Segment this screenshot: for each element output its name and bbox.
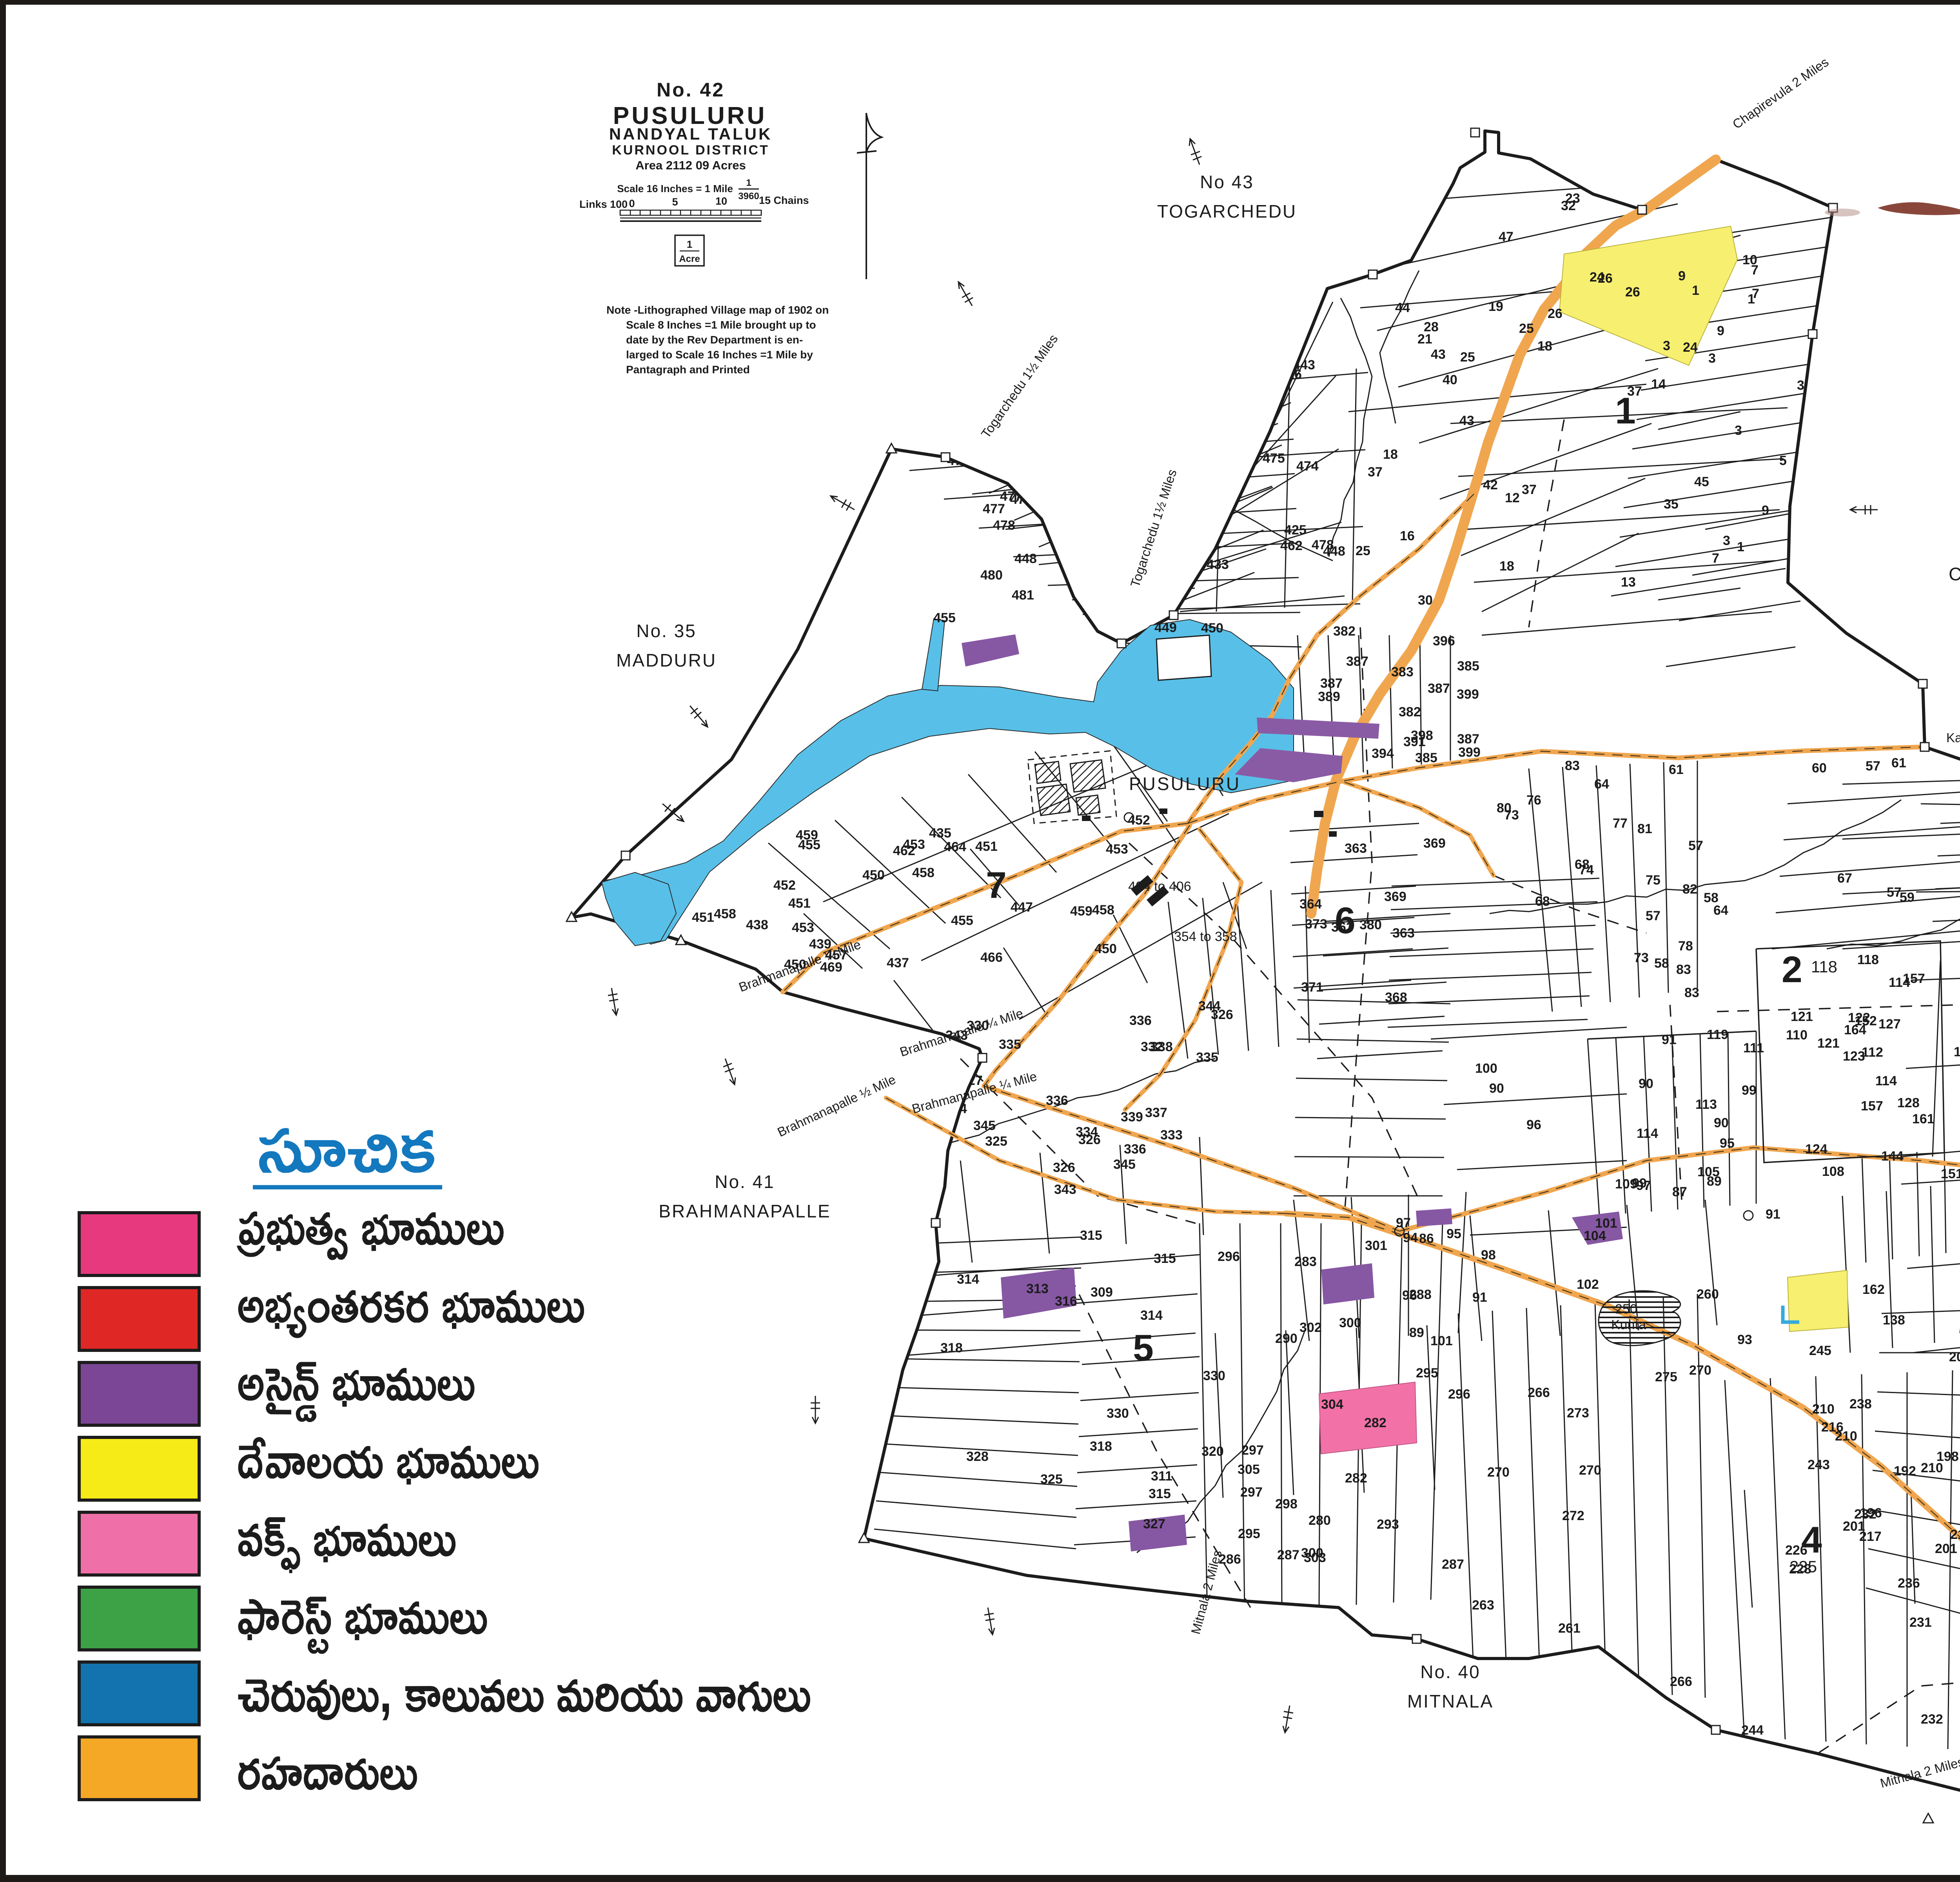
svg-text:315: 315 bbox=[1154, 1251, 1176, 1266]
svg-text:14: 14 bbox=[1651, 377, 1666, 392]
svg-text:438: 438 bbox=[746, 917, 768, 932]
svg-text:448: 448 bbox=[1323, 544, 1345, 559]
svg-text:389: 389 bbox=[1318, 689, 1340, 704]
svg-text:270: 270 bbox=[1689, 1363, 1711, 1378]
svg-text:455: 455 bbox=[933, 610, 956, 625]
svg-text:295: 295 bbox=[1238, 1526, 1260, 1541]
svg-text:95: 95 bbox=[1446, 1226, 1461, 1241]
svg-text:105: 105 bbox=[1697, 1164, 1720, 1179]
svg-text:450: 450 bbox=[862, 868, 885, 883]
svg-text:333: 333 bbox=[1160, 1128, 1183, 1143]
svg-text:77: 77 bbox=[1613, 816, 1628, 831]
svg-text:453: 453 bbox=[1106, 842, 1128, 857]
svg-text:192: 192 bbox=[1894, 1464, 1916, 1479]
svg-text:1: 1 bbox=[1737, 540, 1744, 554]
svg-text:290: 290 bbox=[1275, 1331, 1298, 1346]
svg-text:387: 387 bbox=[1346, 654, 1368, 669]
svg-text:24: 24 bbox=[1590, 270, 1604, 285]
svg-text:9: 9 bbox=[1717, 323, 1724, 338]
svg-text:157: 157 bbox=[1861, 1099, 1883, 1114]
svg-text:474: 474 bbox=[1296, 459, 1319, 474]
svg-text:7: 7 bbox=[986, 865, 1007, 906]
svg-text:114: 114 bbox=[1875, 1074, 1897, 1088]
svg-text:304: 304 bbox=[1321, 1397, 1343, 1412]
svg-text:383: 383 bbox=[1391, 665, 1414, 679]
svg-text:425: 425 bbox=[1284, 523, 1307, 538]
svg-text:238: 238 bbox=[1849, 1397, 1872, 1411]
svg-text:102: 102 bbox=[1577, 1277, 1599, 1292]
svg-text:272: 272 bbox=[1562, 1508, 1584, 1523]
svg-text:91: 91 bbox=[1662, 1032, 1677, 1047]
svg-text:3960: 3960 bbox=[738, 191, 759, 202]
svg-text:464: 464 bbox=[944, 839, 966, 854]
svg-text:86: 86 bbox=[1419, 1231, 1434, 1246]
svg-text:318: 318 bbox=[940, 1341, 963, 1355]
svg-text:118: 118 bbox=[1857, 952, 1879, 967]
svg-text:124: 124 bbox=[1805, 1142, 1828, 1157]
svg-text:382: 382 bbox=[1399, 705, 1421, 719]
svg-text:73: 73 bbox=[1634, 950, 1649, 965]
svg-text:287: 287 bbox=[1277, 1548, 1299, 1562]
svg-text:Acre: Acre bbox=[679, 254, 700, 264]
svg-text:455: 455 bbox=[798, 837, 820, 852]
svg-text:245: 245 bbox=[1809, 1343, 1831, 1358]
svg-text:459: 459 bbox=[1070, 904, 1093, 919]
svg-text:283: 283 bbox=[1294, 1254, 1317, 1269]
svg-text:452: 452 bbox=[773, 878, 796, 893]
svg-text:9: 9 bbox=[1678, 269, 1686, 283]
svg-text:447: 447 bbox=[1011, 900, 1033, 915]
svg-text:57: 57 bbox=[1688, 838, 1703, 853]
svg-text:303: 303 bbox=[1304, 1550, 1326, 1565]
svg-text:90: 90 bbox=[1639, 1076, 1653, 1091]
svg-text:35: 35 bbox=[1664, 497, 1679, 512]
svg-text:larged to Scale 16 Inches =1: larged to Scale 16 Inches =1 Mile by bbox=[626, 349, 813, 361]
svg-text:364: 364 bbox=[1299, 897, 1322, 912]
svg-text:371: 371 bbox=[1301, 980, 1323, 995]
svg-text:MITNALA: MITNALA bbox=[1407, 1691, 1494, 1711]
svg-text:387: 387 bbox=[1457, 732, 1479, 747]
svg-text:127: 127 bbox=[1878, 1017, 1901, 1032]
svg-text:302: 302 bbox=[1299, 1320, 1322, 1335]
svg-text:275: 275 bbox=[1655, 1370, 1677, 1384]
svg-text:119: 119 bbox=[1707, 1027, 1728, 1042]
svg-text:373: 373 bbox=[1305, 917, 1327, 932]
svg-text:PUSULURU: PUSULURU bbox=[1129, 774, 1241, 794]
svg-text:Kunta: Kunta bbox=[1611, 1317, 1646, 1332]
svg-text:123: 123 bbox=[1843, 1049, 1865, 1064]
svg-text:387: 387 bbox=[1428, 681, 1450, 696]
svg-text:Note -Lithographed Village ma: Note -Lithographed Village map of 1902 o… bbox=[606, 304, 829, 316]
svg-text:1: 1 bbox=[746, 178, 751, 188]
svg-text:210: 210 bbox=[1921, 1461, 1943, 1475]
svg-text:288: 288 bbox=[1409, 1287, 1432, 1302]
svg-text:76: 76 bbox=[1526, 793, 1541, 808]
svg-text:260: 260 bbox=[1697, 1287, 1719, 1302]
svg-text:91: 91 bbox=[1766, 1207, 1780, 1222]
svg-text:210: 210 bbox=[1812, 1402, 1835, 1417]
svg-text:10: 10 bbox=[1742, 253, 1757, 267]
svg-text:266: 266 bbox=[1670, 1674, 1692, 1689]
svg-text:330: 330 bbox=[1203, 1368, 1225, 1383]
svg-text:118: 118 bbox=[1811, 957, 1837, 976]
svg-text:325: 325 bbox=[985, 1134, 1007, 1149]
svg-text:325: 325 bbox=[1040, 1472, 1063, 1487]
svg-text:5: 5 bbox=[1133, 1327, 1154, 1369]
svg-text:363: 363 bbox=[1345, 841, 1367, 856]
svg-text:433: 433 bbox=[1207, 557, 1229, 572]
svg-text:161: 161 bbox=[1912, 1112, 1935, 1126]
svg-text:64: 64 bbox=[1713, 903, 1728, 918]
svg-text:19: 19 bbox=[1488, 299, 1503, 314]
svg-text:BRAHMANAPALLE: BRAHMANAPALLE bbox=[659, 1201, 831, 1221]
svg-text:231: 231 bbox=[1909, 1615, 1932, 1630]
svg-text:450: 450 bbox=[1094, 941, 1117, 956]
svg-text:9: 9 bbox=[1762, 503, 1769, 518]
svg-text:No. 41: No. 41 bbox=[715, 1172, 775, 1192]
svg-text:15 Chains: 15 Chains bbox=[759, 194, 809, 206]
svg-text:73: 73 bbox=[1504, 808, 1519, 823]
svg-text:210: 210 bbox=[1950, 1527, 1960, 1542]
svg-text:280: 280 bbox=[1308, 1513, 1331, 1528]
svg-text:13: 13 bbox=[1621, 575, 1636, 590]
svg-text:60: 60 bbox=[1812, 761, 1827, 776]
svg-text:NANDYAL TALUK: NANDYAL TALUK bbox=[609, 125, 773, 143]
svg-text:266: 266 bbox=[1528, 1385, 1550, 1400]
svg-text:270: 270 bbox=[1579, 1463, 1601, 1478]
svg-text:3: 3 bbox=[1735, 423, 1742, 438]
svg-text:91: 91 bbox=[1472, 1290, 1487, 1305]
svg-text:435: 435 bbox=[929, 826, 951, 841]
svg-text:316: 316 bbox=[1055, 1294, 1077, 1309]
svg-text:25: 25 bbox=[1519, 321, 1534, 336]
svg-text:451: 451 bbox=[692, 910, 714, 925]
svg-text:270: 270 bbox=[1487, 1465, 1510, 1480]
svg-text:24: 24 bbox=[1683, 340, 1698, 355]
svg-text:45: 45 bbox=[1694, 474, 1709, 489]
svg-text:261: 261 bbox=[1558, 1621, 1581, 1636]
svg-text:5: 5 bbox=[1779, 453, 1787, 468]
svg-text:232: 232 bbox=[1921, 1712, 1943, 1727]
svg-text:250: 250 bbox=[1615, 1302, 1637, 1317]
svg-text:201: 201 bbox=[1843, 1519, 1865, 1534]
svg-text:363: 363 bbox=[1392, 926, 1415, 941]
svg-text:3: 3 bbox=[1708, 351, 1716, 366]
svg-text:336: 336 bbox=[1124, 1142, 1146, 1157]
svg-text:151: 151 bbox=[1941, 1166, 1960, 1181]
svg-text:Scale 8 Inches =1 Mile brought: Scale 8 Inches =1 Mile brought up to bbox=[626, 319, 816, 331]
svg-text:57: 57 bbox=[1866, 759, 1880, 774]
svg-text:75: 75 bbox=[1646, 873, 1661, 888]
svg-text:64: 64 bbox=[1594, 777, 1609, 792]
svg-text:96: 96 bbox=[1526, 1117, 1541, 1132]
svg-text:12: 12 bbox=[1505, 490, 1520, 505]
svg-text:122: 122 bbox=[1848, 1010, 1870, 1025]
svg-text:99: 99 bbox=[1742, 1083, 1757, 1098]
svg-text:451: 451 bbox=[975, 839, 998, 854]
svg-text:58: 58 bbox=[1654, 956, 1669, 971]
svg-text:368: 368 bbox=[1385, 990, 1407, 1005]
svg-text:68: 68 bbox=[1535, 894, 1550, 909]
svg-text:TOGARCHEDU: TOGARCHEDU bbox=[1157, 201, 1297, 222]
svg-text:345: 345 bbox=[1113, 1157, 1136, 1172]
svg-text:No. 42: No. 42 bbox=[657, 79, 725, 101]
svg-text:298: 298 bbox=[1275, 1497, 1298, 1511]
svg-text:37: 37 bbox=[1368, 465, 1383, 480]
svg-text:78: 78 bbox=[1678, 939, 1693, 954]
svg-text:43: 43 bbox=[1431, 347, 1446, 362]
svg-text:98: 98 bbox=[1481, 1248, 1496, 1263]
svg-text:301: 301 bbox=[1365, 1238, 1387, 1253]
svg-text:452: 452 bbox=[1128, 813, 1150, 828]
svg-text:318: 318 bbox=[1090, 1439, 1112, 1454]
svg-text:300: 300 bbox=[1339, 1315, 1361, 1330]
svg-text:481: 481 bbox=[1012, 588, 1034, 603]
svg-text:462: 462 bbox=[893, 843, 915, 858]
svg-text:345: 345 bbox=[973, 1118, 996, 1133]
svg-text:314: 314 bbox=[957, 1272, 979, 1287]
svg-text:296: 296 bbox=[1218, 1249, 1240, 1264]
svg-text:109: 109 bbox=[1615, 1177, 1637, 1192]
svg-text:334: 334 bbox=[1076, 1124, 1098, 1139]
svg-text:453: 453 bbox=[792, 920, 814, 935]
svg-text:335: 335 bbox=[1196, 1050, 1218, 1065]
svg-text:37: 37 bbox=[1522, 482, 1537, 497]
svg-text:10: 10 bbox=[715, 195, 727, 207]
svg-text:273: 273 bbox=[1567, 1406, 1589, 1421]
svg-text:297: 297 bbox=[1240, 1485, 1263, 1500]
svg-text:309: 309 bbox=[1091, 1285, 1113, 1300]
svg-text:3: 3 bbox=[1663, 338, 1670, 353]
svg-text:104: 104 bbox=[1584, 1228, 1606, 1243]
svg-text:16: 16 bbox=[1400, 529, 1415, 543]
svg-text:448: 448 bbox=[1014, 551, 1037, 566]
svg-text:475: 475 bbox=[1263, 451, 1285, 466]
svg-text:121: 121 bbox=[1791, 1009, 1813, 1024]
svg-text:437: 437 bbox=[887, 956, 909, 970]
svg-text:320: 320 bbox=[1201, 1444, 1224, 1459]
svg-text:26: 26 bbox=[1625, 285, 1640, 300]
svg-text:157: 157 bbox=[1903, 971, 1925, 986]
svg-text:100: 100 bbox=[1475, 1061, 1497, 1076]
svg-text:458: 458 bbox=[714, 906, 736, 921]
svg-text:94: 94 bbox=[1403, 1230, 1418, 1245]
svg-text:162: 162 bbox=[1862, 1282, 1885, 1297]
svg-text:date by the Rev Department i: date by the Rev Department is en- bbox=[626, 334, 803, 346]
svg-text:1: 1 bbox=[687, 238, 692, 250]
svg-text:332: 332 bbox=[1141, 1039, 1163, 1054]
svg-text:380: 380 bbox=[1359, 917, 1382, 932]
svg-text:478: 478 bbox=[993, 518, 1015, 533]
svg-text:83: 83 bbox=[1676, 962, 1691, 977]
svg-text:18: 18 bbox=[1383, 447, 1398, 462]
svg-text:201: 201 bbox=[1935, 1541, 1957, 1556]
svg-text:0: 0 bbox=[629, 198, 635, 209]
svg-text:Pantagraph and Printed: Pantagraph and Printed bbox=[626, 363, 750, 376]
svg-text:391: 391 bbox=[1403, 734, 1426, 749]
svg-text:111: 111 bbox=[1743, 1041, 1764, 1055]
svg-text:144: 144 bbox=[1881, 1149, 1904, 1164]
svg-text:205: 205 bbox=[1949, 1350, 1960, 1364]
svg-text:236: 236 bbox=[1898, 1576, 1920, 1591]
svg-text:6: 6 bbox=[1335, 900, 1356, 941]
svg-text:282: 282 bbox=[1364, 1415, 1387, 1430]
svg-text:90: 90 bbox=[1714, 1115, 1729, 1130]
svg-text:61: 61 bbox=[1891, 756, 1906, 770]
svg-text:314: 314 bbox=[1140, 1308, 1163, 1323]
svg-text:128: 128 bbox=[1897, 1095, 1920, 1110]
svg-text:25: 25 bbox=[1460, 350, 1475, 365]
svg-text:21: 21 bbox=[1417, 332, 1432, 347]
svg-text:83: 83 bbox=[1684, 985, 1699, 1000]
svg-text:466: 466 bbox=[980, 950, 1003, 965]
svg-text:330: 330 bbox=[1107, 1406, 1129, 1421]
svg-text:138: 138 bbox=[1883, 1313, 1905, 1328]
svg-text:458: 458 bbox=[1092, 903, 1114, 917]
svg-text:113: 113 bbox=[1695, 1097, 1717, 1112]
svg-text:82: 82 bbox=[1682, 882, 1697, 897]
svg-text:121: 121 bbox=[1817, 1036, 1840, 1051]
svg-text:458: 458 bbox=[912, 865, 935, 880]
svg-text:Links 100: Links 100 bbox=[579, 198, 628, 210]
svg-text:108: 108 bbox=[1822, 1164, 1844, 1179]
svg-text:42: 42 bbox=[1483, 478, 1498, 492]
svg-text:95: 95 bbox=[1720, 1136, 1735, 1151]
svg-text:385: 385 bbox=[1457, 659, 1479, 674]
svg-text:MADDURU: MADDURU bbox=[616, 650, 717, 670]
svg-text:89: 89 bbox=[1409, 1325, 1424, 1340]
svg-text:480: 480 bbox=[980, 568, 1003, 583]
svg-text:296: 296 bbox=[1448, 1387, 1470, 1402]
svg-text:354 to 358: 354 to 358 bbox=[1174, 929, 1237, 944]
svg-text:315: 315 bbox=[1080, 1228, 1102, 1243]
svg-text:110: 110 bbox=[1786, 1028, 1808, 1043]
svg-text:74: 74 bbox=[1579, 863, 1594, 877]
svg-text:335: 335 bbox=[999, 1037, 1021, 1052]
svg-text:93: 93 bbox=[1737, 1332, 1752, 1347]
svg-text:1: 1 bbox=[1615, 390, 1636, 432]
svg-text:3: 3 bbox=[1723, 533, 1730, 548]
svg-text:295: 295 bbox=[1416, 1366, 1438, 1381]
svg-text:7: 7 bbox=[1712, 551, 1719, 566]
svg-text:293: 293 bbox=[1377, 1517, 1399, 1532]
svg-text:67: 67 bbox=[1837, 871, 1852, 886]
svg-text:2: 2 bbox=[1782, 949, 1802, 990]
svg-text:396: 396 bbox=[1433, 634, 1455, 649]
svg-text:339: 339 bbox=[1121, 1110, 1143, 1124]
svg-text:23: 23 bbox=[1565, 191, 1580, 206]
svg-text:61: 61 bbox=[1669, 762, 1684, 777]
svg-text:327: 327 bbox=[1143, 1517, 1165, 1531]
svg-text:4: 4 bbox=[1801, 1519, 1822, 1561]
svg-text:326: 326 bbox=[1053, 1160, 1075, 1175]
svg-text:90: 90 bbox=[1489, 1081, 1504, 1096]
svg-text:305: 305 bbox=[1238, 1462, 1260, 1477]
svg-text:337: 337 bbox=[1145, 1105, 1167, 1120]
svg-text:CHAPIREVULA: CHAPIREVULA bbox=[1949, 564, 1960, 584]
svg-text:Kanala 2½ Miles: Kanala 2½ Miles bbox=[1946, 730, 1960, 745]
svg-text:297: 297 bbox=[1241, 1443, 1264, 1458]
svg-text:18: 18 bbox=[1499, 559, 1514, 574]
svg-text:313: 313 bbox=[1026, 1281, 1049, 1296]
svg-text:462: 462 bbox=[1280, 538, 1303, 553]
svg-text:455: 455 bbox=[951, 913, 973, 928]
svg-text:30: 30 bbox=[1418, 593, 1433, 608]
svg-text:Scale 16 Inches = 1 Mile: Scale 16 Inches = 1 Mile bbox=[617, 183, 733, 194]
svg-text:18: 18 bbox=[1537, 339, 1552, 354]
svg-text:87: 87 bbox=[1672, 1184, 1687, 1199]
svg-text:382: 382 bbox=[1333, 624, 1356, 639]
svg-text:59: 59 bbox=[1900, 890, 1915, 905]
svg-text:315: 315 bbox=[1149, 1486, 1171, 1501]
svg-text:287: 287 bbox=[1442, 1557, 1464, 1572]
svg-text:5: 5 bbox=[672, 196, 678, 208]
svg-text:394: 394 bbox=[1372, 746, 1394, 761]
svg-text:No 43: No 43 bbox=[1200, 172, 1254, 192]
svg-text:216: 216 bbox=[1821, 1420, 1844, 1435]
svg-text:243: 243 bbox=[1808, 1457, 1830, 1472]
svg-text:326: 326 bbox=[1211, 1007, 1233, 1022]
svg-text:399: 399 bbox=[1458, 745, 1481, 760]
svg-text:336: 336 bbox=[1129, 1013, 1152, 1028]
svg-text:81: 81 bbox=[1637, 821, 1652, 836]
svg-text:328: 328 bbox=[966, 1449, 989, 1464]
svg-text:263: 263 bbox=[1472, 1598, 1494, 1613]
svg-text:40: 40 bbox=[1443, 372, 1457, 387]
svg-text:108: 108 bbox=[1954, 1045, 1960, 1059]
svg-text:101: 101 bbox=[1430, 1333, 1453, 1348]
svg-text:450: 450 bbox=[1201, 621, 1223, 636]
svg-text:Area 2112 09 Acres: Area 2112 09 Acres bbox=[635, 158, 746, 172]
svg-text:343: 343 bbox=[1054, 1182, 1076, 1197]
svg-text:385: 385 bbox=[1415, 750, 1437, 765]
svg-text:83: 83 bbox=[1565, 758, 1580, 773]
svg-text:399: 399 bbox=[1457, 687, 1479, 702]
svg-text:43: 43 bbox=[1459, 413, 1474, 428]
svg-text:7: 7 bbox=[1752, 286, 1759, 301]
svg-text:3: 3 bbox=[1797, 378, 1804, 393]
svg-text:369: 369 bbox=[1423, 836, 1446, 851]
svg-text:47: 47 bbox=[1499, 229, 1514, 244]
svg-text:No. 40: No. 40 bbox=[1420, 1662, 1481, 1682]
svg-text:114: 114 bbox=[1637, 1126, 1658, 1141]
svg-text:KURNOOL DISTRICT: KURNOOL DISTRICT bbox=[612, 143, 769, 158]
svg-text:26: 26 bbox=[1548, 306, 1563, 321]
svg-text:235: 235 bbox=[1789, 1557, 1817, 1576]
svg-text:44: 44 bbox=[1395, 300, 1410, 315]
svg-text:282: 282 bbox=[1345, 1471, 1367, 1486]
svg-text:369: 369 bbox=[1384, 889, 1406, 904]
svg-text:1: 1 bbox=[1692, 283, 1699, 298]
svg-text:57: 57 bbox=[1646, 908, 1661, 923]
svg-text:404 to 406: 404 to 406 bbox=[1128, 879, 1191, 894]
svg-text:311: 311 bbox=[1151, 1469, 1172, 1484]
svg-text:387: 387 bbox=[1320, 676, 1343, 691]
svg-text:25: 25 bbox=[1356, 543, 1370, 558]
svg-text:No. 35: No. 35 bbox=[636, 621, 697, 641]
svg-text:244: 244 bbox=[1741, 1723, 1764, 1738]
svg-text:451: 451 bbox=[788, 896, 811, 911]
svg-text:336: 336 bbox=[1046, 1093, 1068, 1108]
